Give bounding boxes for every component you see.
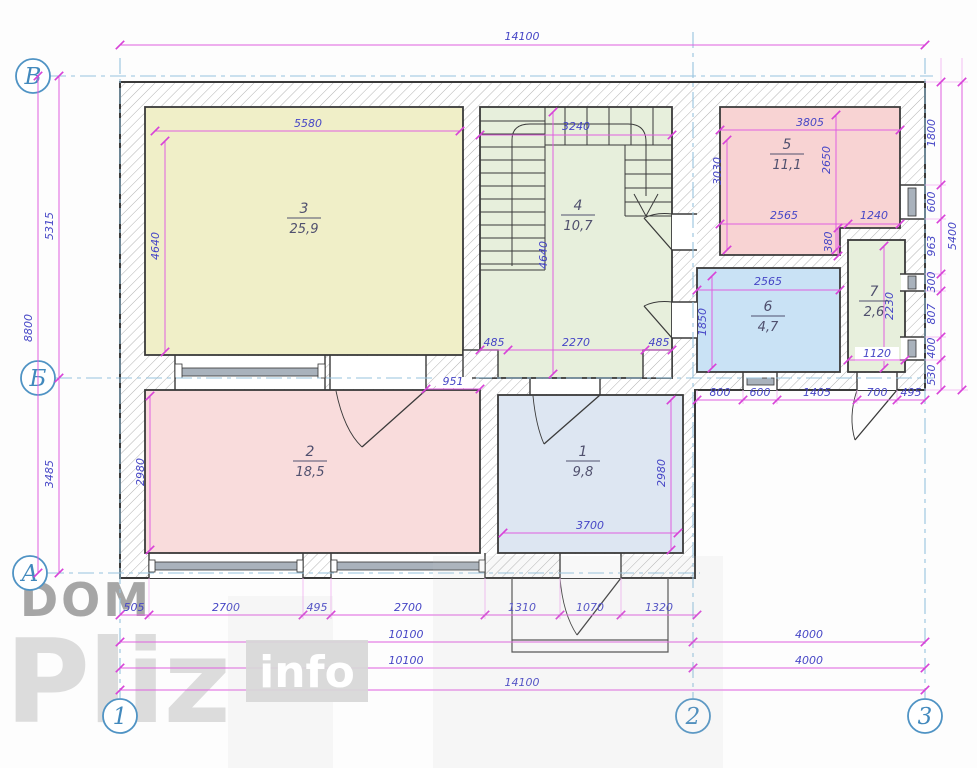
dim-r2-951: 951: [443, 375, 464, 388]
dim-b-4000b: 4000: [795, 654, 823, 667]
dim-r3-5580: 5580: [294, 117, 322, 130]
svg-text:18,5: 18,5: [296, 465, 325, 480]
svg-text:10,7: 10,7: [564, 219, 594, 234]
dim-right-963: 963: [925, 236, 938, 257]
dim-b-10100b: 10100: [389, 654, 424, 667]
axis-label-1: 1: [113, 704, 128, 730]
svg-text:7: 7: [870, 284, 879, 300]
dim-r7-2230: 2230: [883, 292, 896, 320]
dim-left-5315: 5315: [43, 212, 56, 240]
dim-r5-3805: 3805: [796, 116, 824, 129]
svg-text:5: 5: [783, 137, 792, 153]
dim-right-1800: 1800: [925, 119, 938, 147]
dim-r2-2980: 2980: [134, 458, 147, 486]
wall-stub-left: [463, 350, 498, 378]
floor-plan-drawing: DOM Pliz: [0, 0, 977, 768]
dim-r1-3700: 3700: [576, 519, 604, 532]
svg-text:2: 2: [306, 444, 315, 460]
axis-label-A: А: [19, 561, 38, 587]
svg-text:3: 3: [300, 201, 309, 217]
axis-label-B: В: [24, 64, 42, 90]
window-south-1: [149, 553, 303, 578]
dim-r4-2270: 2270: [562, 336, 590, 349]
dim-right-530: 530: [925, 365, 938, 386]
dim-b-4000a: 4000: [795, 628, 823, 641]
dim-r6-2565: 2565: [754, 275, 782, 288]
svg-text:1: 1: [579, 444, 588, 460]
entry-door-side: [852, 372, 897, 440]
dim-b-505: 505: [124, 601, 145, 614]
dim-r5-2565: 2565: [770, 209, 798, 222]
dim-right-5400: 5400: [946, 222, 959, 250]
dim-right-400: 400: [925, 338, 938, 359]
dim-wing-495: 495: [901, 386, 922, 399]
dim-r5-2650: 2650: [820, 146, 833, 174]
svg-text:4: 4: [574, 198, 583, 214]
watermark-info: info: [259, 647, 355, 698]
dim-r6-1850: 1850: [696, 308, 709, 336]
dim-r1-2980: 2980: [655, 459, 668, 487]
dim-wing-1405: 1405: [803, 386, 831, 399]
dim-wing-800: 800: [710, 386, 731, 399]
dim-r4-3240: 3240: [562, 120, 590, 133]
dim-left-3485: 3485: [43, 460, 56, 488]
floor-plan-page: DOM Pliz: [0, 0, 977, 768]
watermark-info-block: info: [246, 640, 368, 702]
dim-r4-4640: 4640: [537, 241, 550, 269]
svg-text:25,9: 25,9: [290, 222, 319, 237]
dim-right-807: 807: [925, 304, 938, 325]
interior-window: [175, 355, 325, 390]
window-east-1: [900, 185, 925, 219]
dim-r5-3030: 3030: [711, 157, 724, 185]
dim-b-10100a: 10100: [389, 628, 424, 641]
dim-r5-380: 380: [822, 232, 835, 253]
dim-left-8800: 8800: [22, 314, 35, 342]
svg-text:2,6: 2,6: [864, 305, 885, 320]
wall-stub-right: [643, 350, 672, 378]
dim-right-600: 600: [925, 192, 938, 213]
svg-text:9,8: 9,8: [573, 465, 594, 480]
dim-top-14100: 14100: [505, 30, 540, 43]
window-east-2: [900, 274, 925, 291]
dim-r4-485b: 485: [649, 336, 670, 349]
window-east-3: [900, 337, 925, 360]
dim-wing-600: 600: [750, 386, 771, 399]
dim-r5-1240: 1240: [860, 209, 888, 222]
dim-right-300: 300: [925, 272, 938, 293]
svg-text:11,1: 11,1: [773, 158, 802, 173]
svg-text:6: 6: [764, 299, 773, 315]
dim-r3-4640: 4640: [149, 232, 162, 260]
dim-wing-700: 700: [867, 386, 888, 399]
watermark-overlay: info: [228, 556, 723, 768]
dim-b-2700b: 2700: [394, 601, 422, 614]
svg-text:4,7: 4,7: [758, 320, 779, 335]
dim-r7-1120: 1120: [863, 347, 891, 360]
axis-label-3: 3: [918, 704, 933, 730]
dim-r4-485a: 485: [484, 336, 505, 349]
